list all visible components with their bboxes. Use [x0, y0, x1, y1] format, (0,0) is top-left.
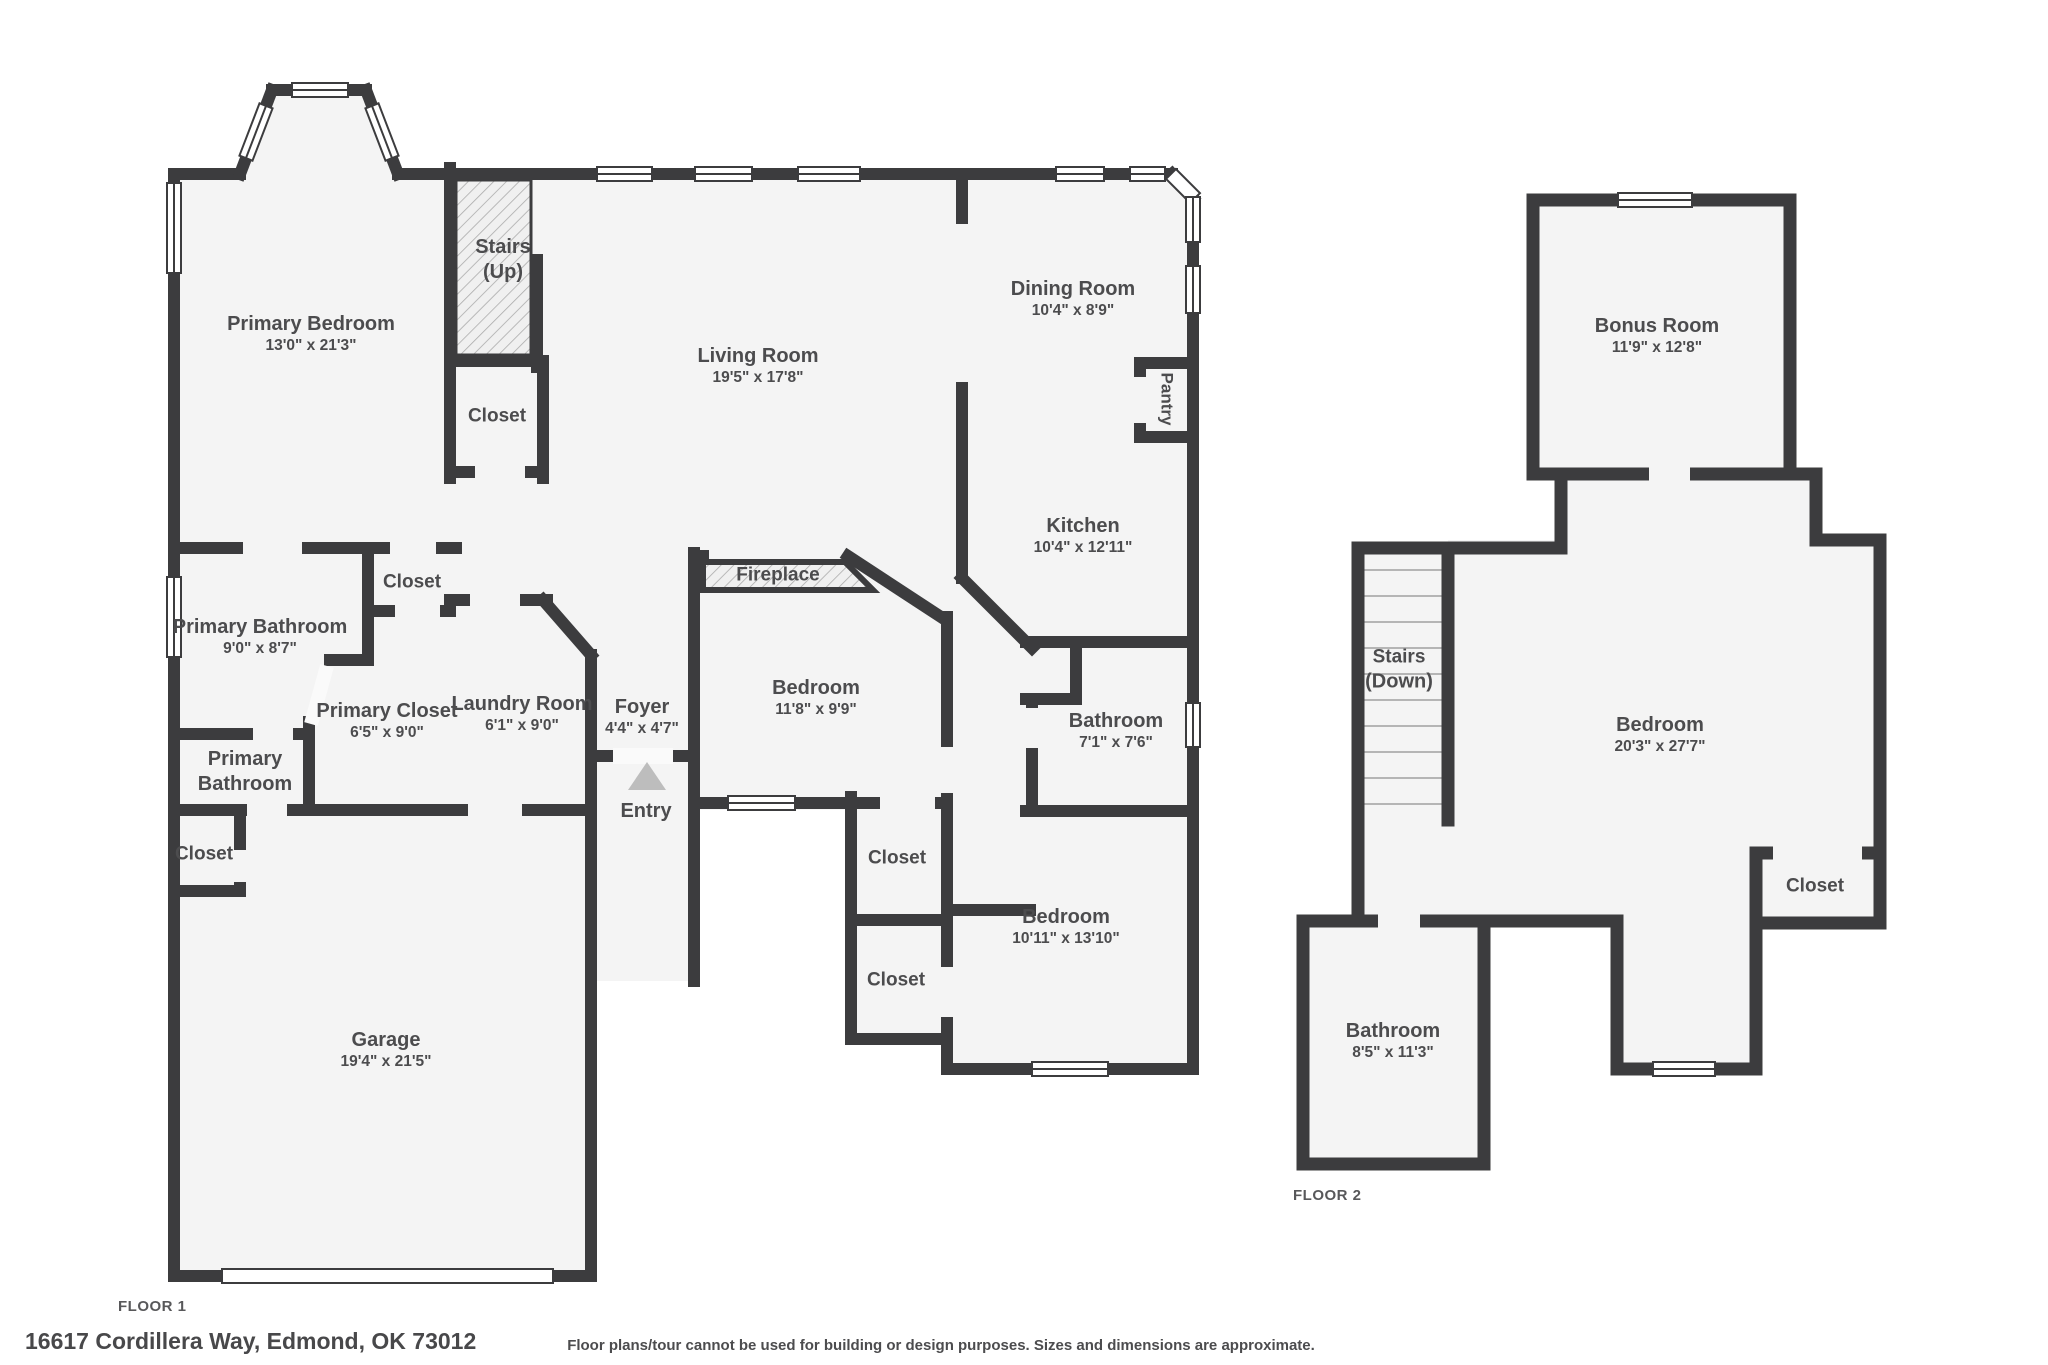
room-label-fireplace: Fireplace — [736, 563, 819, 586]
room-name: Fireplace — [736, 563, 819, 586]
room-label-stairs-up: Stairs (Up) — [475, 235, 531, 285]
floor2-title: FLOOR 2 — [1293, 1187, 1362, 1204]
room-name: Dining Room — [1011, 277, 1135, 301]
room-name: Bedroom — [772, 676, 860, 700]
room-name: Primary Bathroom — [173, 615, 348, 639]
room-label-bedroom-1: Bedroom 11'8" x 9'9" — [772, 676, 860, 720]
room-name: Entry — [620, 799, 671, 823]
room-name: Garage — [340, 1028, 431, 1052]
room-label-closet-f2: Closet — [1786, 874, 1844, 897]
room-dims: 11'9" x 12'8" — [1595, 339, 1719, 358]
room-label-primary-bedroom: Primary Bedroom 13'0" x 21'3" — [227, 312, 395, 356]
room-dims: 20'3" x 27'7" — [1614, 738, 1705, 757]
room-label-bonus-room: Bonus Room 11'9" x 12'8" — [1595, 314, 1719, 358]
room-name: Closet — [468, 404, 526, 427]
room-label-primary-bathroom-2: Primary Bathroom — [198, 747, 292, 797]
room-label-closet-under-stairs: Closet — [468, 404, 526, 427]
room-label-pantry: Pantry — [1156, 373, 1177, 426]
room-dims: 8'5" x 11'3" — [1346, 1044, 1440, 1063]
room-name: Primary Bedroom — [227, 312, 395, 336]
room-label-bedroom-2: Bedroom 10'11" x 13'10" — [1012, 905, 1119, 949]
room-label-bathroom: Bathroom 7'1" x 7'6" — [1069, 709, 1163, 753]
room-dims: 6'1" x 9'0" — [451, 717, 592, 736]
room-dims: 7'1" x 7'6" — [1069, 734, 1163, 753]
room-label-bedroom-f2: Bedroom 20'3" x 27'7" — [1614, 713, 1705, 757]
room-label-laundry-room: Laundry Room 6'1" x 9'0" — [451, 692, 592, 736]
room-name: Bathroom — [198, 773, 292, 797]
room-name: Foyer — [605, 695, 679, 719]
room-name: Stairs — [475, 235, 531, 259]
room-name: Bathroom — [1069, 709, 1163, 733]
room-name: Closet — [1786, 874, 1844, 897]
room-label-entry: Entry — [620, 799, 671, 823]
room-dims: 11'8" x 9'9" — [772, 701, 860, 720]
exterior-door-openings — [613, 748, 673, 764]
disclaimer-text: Floor plans/tour cannot be used for buil… — [567, 1337, 1315, 1354]
room-label-garage-closet: Closet — [175, 842, 233, 865]
room-label-hall-closet: Closet — [383, 570, 441, 593]
room-dims: 10'4" x 8'9" — [1011, 302, 1135, 321]
room-label-foyer: Foyer 4'4" x 4'7" — [605, 695, 679, 739]
room-label-living-room: Living Room 19'5" x 17'8" — [697, 344, 818, 388]
room-label-closet-b: Closet — [867, 968, 925, 991]
room-dims: 10'4" x 12'11" — [1034, 539, 1133, 558]
room-name: Primary Closet — [316, 699, 457, 723]
room-label-primary-bathroom: Primary Bathroom 9'0" x 8'7" — [173, 615, 348, 659]
room-dims: (Up) — [475, 261, 531, 285]
room-name: Closet — [867, 968, 925, 991]
room-name: Primary — [198, 747, 292, 771]
room-dims: 19'5" x 17'8" — [697, 369, 818, 388]
room-label-garage: Garage 19'4" x 21'5" — [340, 1028, 431, 1072]
room-name: Laundry Room — [451, 692, 592, 716]
room-dims: 19'4" x 21'5" — [340, 1053, 431, 1072]
room-name: Closet — [383, 570, 441, 593]
room-label-bathroom-f2: Bathroom 8'5" x 11'3" — [1346, 1019, 1440, 1063]
floor-plan-drawing — [0, 0, 2048, 1365]
room-name: (Down) — [1365, 670, 1433, 694]
room-name: Closet — [175, 842, 233, 865]
room-name: Closet — [868, 846, 926, 869]
garage-door — [222, 1269, 553, 1283]
room-name: Kitchen — [1034, 514, 1133, 538]
room-label-kitchen: Kitchen 10'4" x 12'11" — [1034, 514, 1133, 558]
room-name: Bedroom — [1012, 905, 1119, 929]
room-dims: 10'11" x 13'10" — [1012, 930, 1119, 949]
room-label-closet-a: Closet — [868, 846, 926, 869]
room-name: Bonus Room — [1595, 314, 1719, 338]
room-name: Stairs — [1365, 646, 1433, 669]
floor-plan-page: Primary Bedroom 13'0" x 21'3" Stairs (Up… — [0, 0, 2048, 1365]
room-name: Living Room — [697, 344, 818, 368]
room-label-dining-room: Dining Room 10'4" x 8'9" — [1011, 277, 1135, 321]
room-name: Bathroom — [1346, 1019, 1440, 1043]
floor1-title: FLOOR 1 — [118, 1298, 187, 1315]
room-label-stairs-down: Stairs (Down) — [1365, 646, 1433, 695]
room-dims: 9'0" x 8'7" — [173, 640, 348, 659]
room-dims: 4'4" x 4'7" — [605, 720, 679, 739]
property-address: 16617 Cordillera Way, Edmond, OK 73012 — [25, 1328, 476, 1355]
room-name: Bedroom — [1614, 713, 1705, 737]
room-name: Pantry — [1156, 373, 1177, 426]
room-dims: 13'0" x 21'3" — [227, 337, 395, 356]
room-label-primary-closet: Primary Closet 6'5" x 9'0" — [316, 699, 457, 743]
room-dims: 6'5" x 9'0" — [316, 724, 457, 743]
